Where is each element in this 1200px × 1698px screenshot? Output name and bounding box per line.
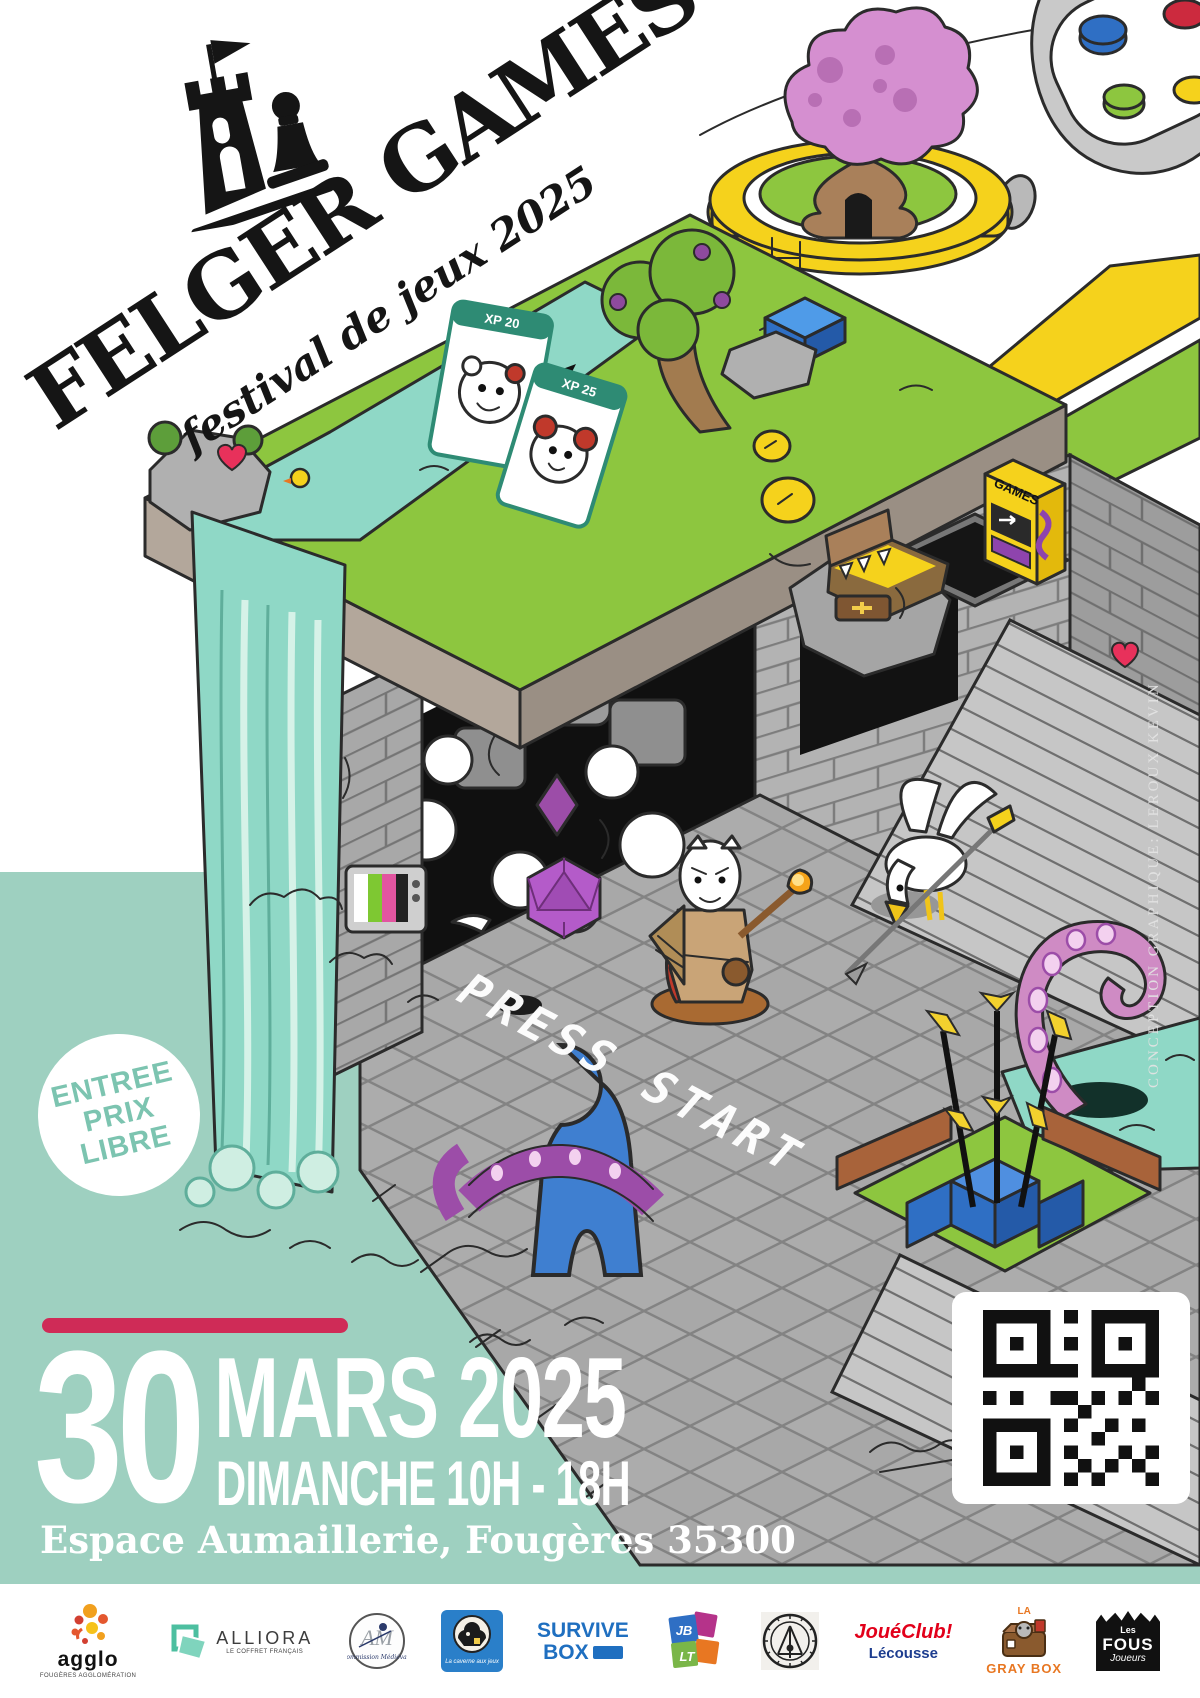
joueclub-name: JouéClub! (855, 1621, 953, 1644)
am-circle-icon: AM Commission Médiévale (347, 1611, 407, 1671)
event-time: DIMANCHE 10H - 18H (216, 1454, 630, 1514)
event-day: 30 (34, 1336, 199, 1520)
sponsor-agglo: agglo FOUGÈRES AGGLOMÉRATION (40, 1603, 136, 1679)
tv-illustration (346, 866, 426, 932)
credit-vertical: CONCEPTION GRAPHIQUE: LEROUX KEVIN (1146, 568, 1163, 1088)
graybox-toolbox-icon (995, 1618, 1053, 1660)
sponsor-agglo-name: agglo (58, 1648, 119, 1672)
jblt-squares-icon: JB LT (663, 1610, 725, 1672)
event-venue: Espace Aumaillerie, Fougères 35300 (40, 1518, 796, 1562)
lt-letters: LT (679, 1649, 695, 1664)
left-pillar-illustration (330, 655, 426, 1077)
graybox-name: GRAY BOX (986, 1661, 1062, 1676)
box-text: BOX (543, 1642, 589, 1663)
joueclub-city: Lécousse (869, 1645, 938, 1662)
sponsor-joueclub: JouéClub! Lécousse (855, 1621, 953, 1662)
sponsor-gray-box: LA GRAY BOX (986, 1607, 1062, 1676)
event-month-year: MARS 2025 (214, 1348, 625, 1451)
graybox-la: LA (1017, 1607, 1030, 1617)
fous-joueurs: Joueurs (1110, 1654, 1146, 1664)
sponsor-commission-medievale: AM Commission Médiévale (347, 1611, 407, 1671)
qr-code (952, 1292, 1190, 1504)
sponsor-jblt: JB LT (663, 1610, 725, 1672)
fous-les: Les (1120, 1626, 1136, 1635)
agglo-splash-icon (62, 1603, 114, 1647)
qr-pattern (983, 1310, 1159, 1486)
caverne-icon (441, 1610, 503, 1658)
sponsor-caverne-aux-jeux: La caverne aux jeux (441, 1610, 503, 1672)
survive-text: SURVIVE (537, 1620, 629, 1641)
sponsor-seal (759, 1610, 821, 1672)
jb-letters: JB (675, 1623, 692, 1638)
sponsor-alliora-name: ALLIORA (216, 1628, 313, 1649)
fous-name: FOUS (1102, 1636, 1153, 1653)
arcade-cabinet-illustration: GAMES (985, 460, 1065, 584)
poster: XP 20 XP 25 (0, 0, 1200, 1698)
sponsor-agglo-sub: FOUGÈRES AGGLOMÉRATION (40, 1673, 136, 1679)
sponsor-bar: agglo FOUGÈRES AGGLOMÉRATION ALLIORA LE … (0, 1584, 1200, 1698)
am-caption: Commission Médiévale (347, 1654, 407, 1661)
alliora-box-icon (170, 1621, 210, 1661)
sponsor-fous-joueurs: Les FOUS Joueurs (1096, 1611, 1160, 1671)
sponsor-alliora: ALLIORA LE COFFRET FRANÇAIS (170, 1621, 313, 1661)
seal-emblem-icon (759, 1610, 821, 1672)
sponsor-caverne-caption: La caverne aux jeux (445, 1659, 499, 1665)
sponsor-survive-box: SURVIVE BOX (537, 1620, 629, 1663)
sponsor-alliora-sub: LE COFFRET FRANÇAIS (216, 1649, 313, 1655)
survive-box-bar-icon (593, 1646, 623, 1659)
